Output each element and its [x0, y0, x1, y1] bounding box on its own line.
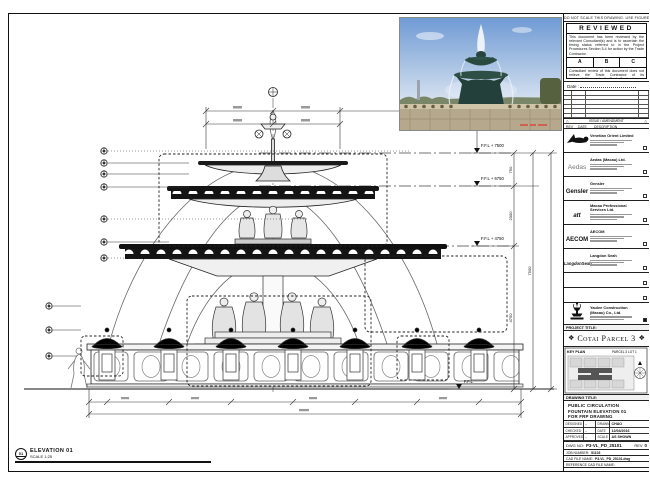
dwg-no-label: DWG NO:: [566, 443, 584, 448]
designed-label: DESIGNED: [564, 421, 584, 427]
company-checkbox: [643, 266, 647, 270]
company-block-aecom: AECOM AECOM: [564, 225, 649, 249]
drawing-info-table: DESIGNED - DRAWN CHAO CHECKED - DATE 12/…: [564, 421, 649, 442]
contractor-block: Yaulee Construction (Macau) Co., Ltd.: [564, 303, 649, 325]
svg-text:750: 750: [508, 166, 513, 173]
rev-col-label: REV: [566, 125, 578, 129]
company-name: Macau Professional Services Ltd.: [590, 204, 643, 213]
reviewed-title: REVIEWED: [567, 24, 646, 34]
detail-bubble: 01: [15, 448, 27, 460]
job-number-value: 51103: [591, 451, 600, 455]
approved-value: -: [584, 434, 596, 440]
stamp-text-1: This document has been reviewed by the r…: [567, 34, 646, 57]
company-checkbox: [643, 146, 647, 150]
banner-ornament-icon: ❖: [568, 335, 574, 342]
date-fill-line: [580, 84, 636, 88]
stamp-option-c: C: [620, 58, 646, 67]
fountain-photo: [399, 17, 562, 131]
company-checkbox: [643, 194, 647, 198]
large-basin: [119, 244, 447, 276]
company-address: [590, 164, 643, 170]
svg-text:F.F.L + 7500: F.F.L + 7500: [481, 143, 504, 148]
stamp-date-row: Date :: [564, 82, 649, 91]
dwg-number-row: DWG NO: P3-VL_PD_25101 REV 0: [564, 442, 649, 450]
rev-label: REV: [634, 443, 642, 448]
elevation-title-block: 01 ELEVATION 01 SCALE 1:25: [15, 448, 215, 463]
company-address: [590, 260, 643, 266]
company-name: AECOM: [590, 230, 643, 234]
company-checkbox: [643, 242, 647, 246]
checked-value: -: [584, 428, 596, 434]
company-block-aedas: Aedas Aedas (Macau) Ltd.: [564, 153, 649, 177]
key-plan-parcel-label: PARCEL 3 LOT 1: [612, 350, 637, 354]
revision-table: [564, 91, 649, 119]
triangle-icon: △: [644, 119, 647, 123]
date-label: DATE: [596, 428, 610, 434]
langdonseah-logo: LangdonSeah: [564, 261, 592, 266]
elevation-scale: SCALE 1:25: [30, 454, 73, 459]
photo-watermark: [520, 124, 547, 126]
dwg-no-value: P3-VL_PD_25101: [586, 443, 622, 448]
drawn-label: DRAWN: [596, 421, 610, 427]
stamp-text-2: Consultant review of this document does …: [567, 68, 646, 79]
svg-text:4750: 4750: [508, 313, 513, 323]
scale-value: AS SHOWN: [610, 434, 649, 440]
svg-text:F.F.L: F.F.L: [464, 379, 474, 384]
venetian-lion-logo-icon: [564, 131, 590, 150]
rev-value: 0: [645, 443, 647, 448]
title-block: DO NOT SCALE THIS DRAWING. USE FIGURED D…: [563, 14, 649, 471]
checked-label: CHECKED: [564, 428, 584, 434]
project-name: Cotai Parcel 3: [577, 334, 635, 343]
empty-consultant-box: [564, 288, 649, 303]
scale-figure: [68, 348, 90, 388]
drawing-title-line: FOR FRP DRAWING: [568, 414, 649, 420]
sheet-note: DO NOT SCALE THIS DRAWING. USE FIGURED D…: [564, 14, 649, 22]
issue-label: ISSUE / AMENDMENT: [589, 119, 624, 123]
key-plan-map: [568, 356, 646, 390]
date-label: Date :: [567, 84, 579, 89]
key-plan: KEY PLAN PARCEL 3 LOT 1: [564, 347, 649, 395]
aedas-logo: Aedas: [568, 164, 586, 171]
revision-row: [564, 114, 649, 119]
company-checkbox: [643, 218, 647, 222]
svg-text:2000: 2000: [508, 211, 513, 221]
company-block-mps: att Macau Professional Services Ltd.: [564, 201, 649, 225]
cad-file-label: CAD FILE NAME:: [566, 457, 593, 461]
company-name: Aedas (Macau) Ltd.: [590, 158, 643, 162]
obelisk: [417, 80, 420, 100]
mps-logo: att: [573, 213, 580, 219]
company-address: [590, 140, 643, 146]
company-address: [590, 214, 643, 220]
stamp-options: A B C: [567, 57, 646, 68]
basin-wall: [400, 109, 561, 130]
banner-ornament-icon: ❖: [639, 335, 645, 342]
contractor-name: Yaulee Construction (Macau) Co., Ltd.: [590, 306, 643, 315]
designed-value: -: [584, 421, 596, 427]
middle-bowl: [167, 186, 379, 207]
triangle-icon: △: [566, 119, 569, 123]
reference-cad-row: REFERENCE CAD FILE NAME:: [564, 462, 649, 468]
base-figures: [195, 276, 351, 350]
upper-figures: [235, 206, 311, 244]
job-number-label: JOB NUMBER:: [566, 451, 589, 455]
gensler-logo: Gensler: [566, 189, 588, 195]
company-name: Langdon Seah: [590, 254, 643, 258]
reviewed-stamp: REVIEWED This document has been reviewed…: [564, 22, 649, 82]
reference-cad-label: REFERENCE CAD FILE NAME:: [566, 463, 615, 467]
company-address: [590, 188, 643, 194]
company-block-gensler: Gensler Gensler: [564, 177, 649, 201]
cad-file-value: P3-VL_PD_25101.dwg: [595, 457, 630, 461]
tree: [540, 78, 561, 104]
title-underline: [15, 461, 211, 463]
svg-text:7500: 7500: [527, 266, 532, 276]
company-block-venetian: Venetian Orient Limited: [564, 129, 649, 153]
date-value: 12/04/2016: [610, 428, 649, 434]
stamp-option-a: A: [567, 58, 594, 67]
company-name: Venetian Orient Limited: [590, 134, 643, 138]
revision-table-footer: △ ISSUE / AMENDMENT △ REV DATE DESCRIPTI…: [564, 119, 649, 129]
empty-consultant-box: [564, 273, 649, 288]
company-name: Gensler: [590, 182, 643, 186]
company-block-langdonseah: LangdonSeah Langdon Seah: [564, 249, 649, 273]
date-col-label: DATE: [578, 125, 594, 129]
drawing-title: PUBLIC CIRCULATION FOUNTAIN ELEVATION 01…: [564, 401, 649, 421]
company-address: [590, 236, 643, 242]
approved-label: APPROVED: [564, 434, 584, 440]
company-checkbox: [643, 170, 647, 174]
bottom-dimensions: [86, 389, 524, 418]
drawing-area: F.F.L + 7500 F.F.L + 6750 F.F.L + 4750 F…: [9, 14, 563, 471]
svg-text:F.F.L + 4750: F.F.L + 4750: [481, 236, 504, 241]
key-plan-label: KEY PLAN: [567, 350, 586, 354]
scale-label: SCALE: [596, 434, 610, 440]
drawn-value: CHAO: [610, 421, 649, 427]
drawing-sheet: F.F.L + 7500 F.F.L + 6750 F.F.L + 4750 F…: [8, 13, 649, 472]
fountain-logo-icon: [564, 302, 590, 325]
project-banner: ❖ Cotai Parcel 3 ❖: [564, 331, 649, 347]
aecom-logo: AECOM: [566, 237, 588, 243]
contractor-address: [590, 316, 643, 319]
svg-text:F.F.L + 6750: F.F.L + 6750: [481, 176, 504, 181]
stamp-option-b: B: [594, 58, 621, 67]
description-col-label: DESCRIPTION: [594, 125, 647, 129]
contractor-checkbox: [643, 318, 647, 322]
